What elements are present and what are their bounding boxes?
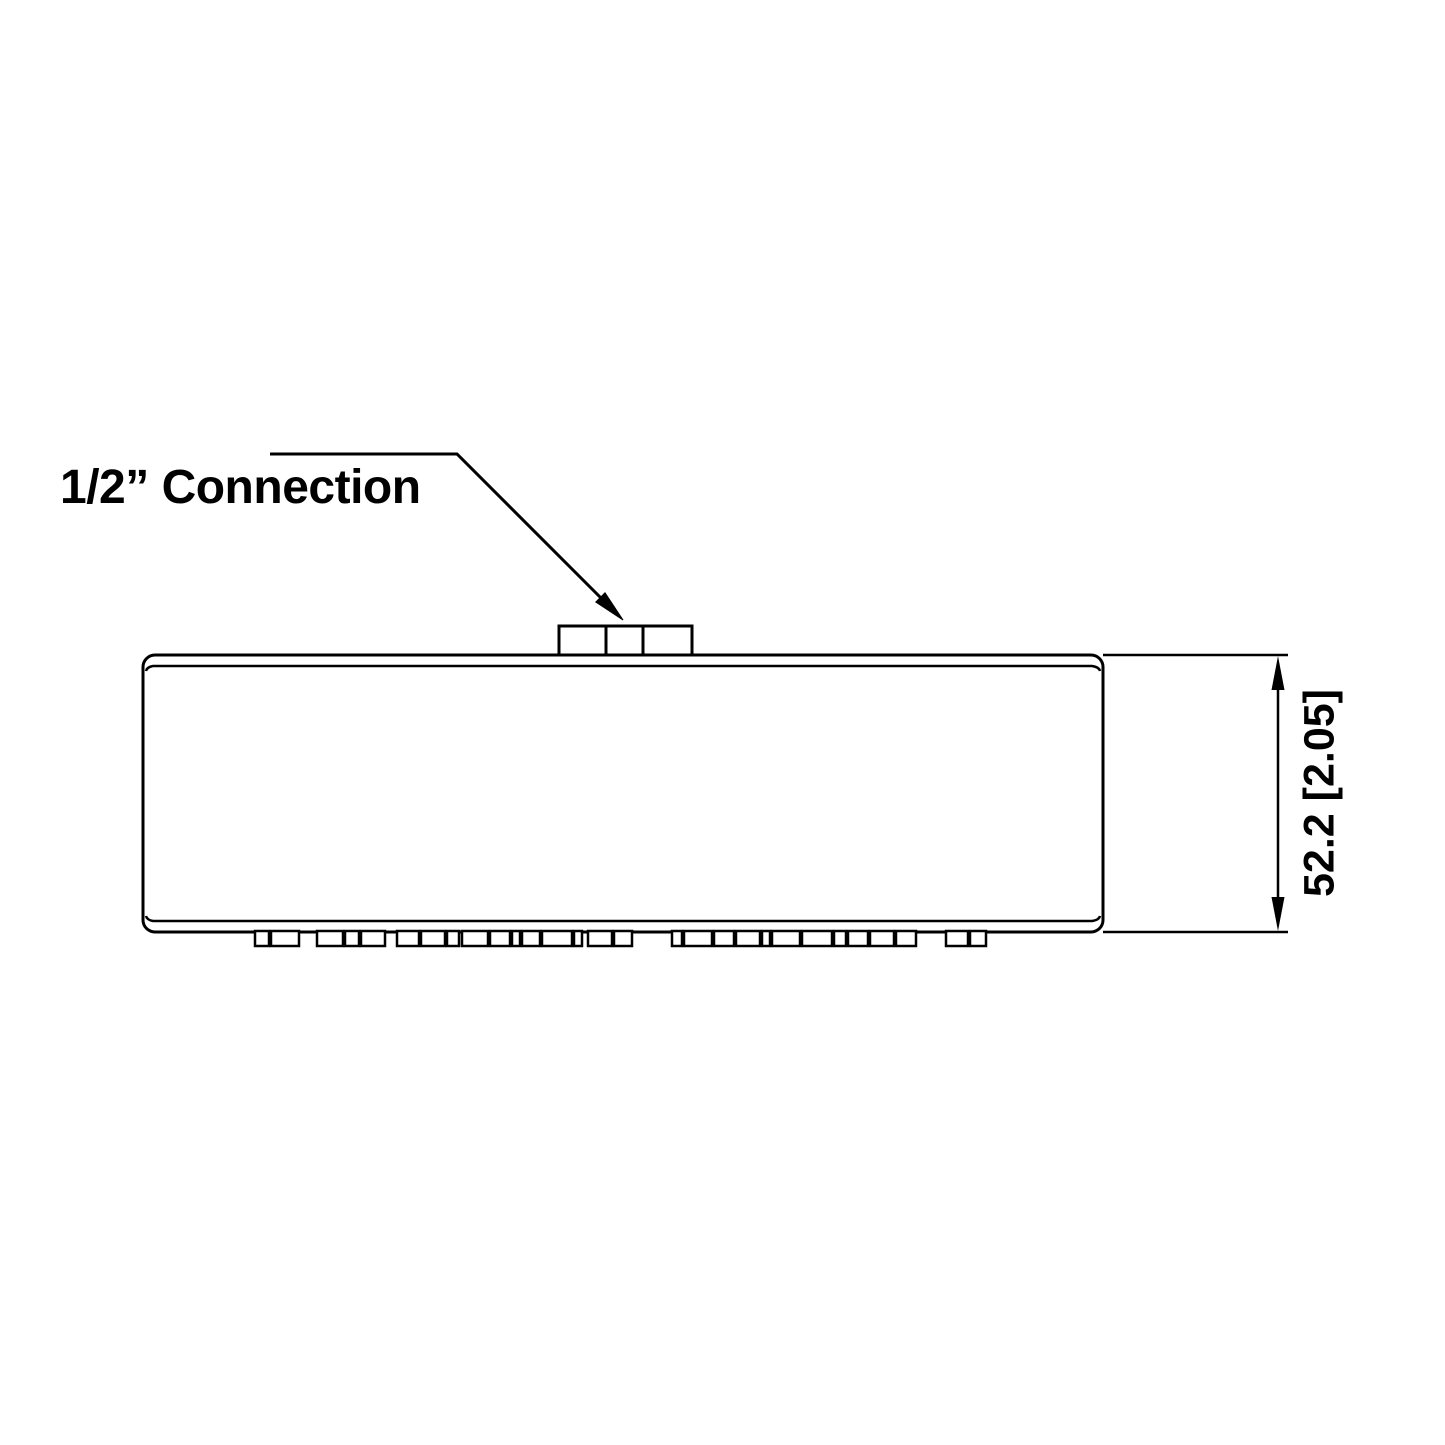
body-outline xyxy=(143,655,1103,932)
nozzle xyxy=(684,931,712,946)
nozzle xyxy=(542,931,572,946)
nozzle xyxy=(772,931,800,946)
nozzle xyxy=(397,931,419,946)
nozzle xyxy=(462,931,488,946)
nozzle xyxy=(522,931,540,946)
nozzle xyxy=(271,931,299,946)
nozzle-row xyxy=(255,931,986,946)
nozzle xyxy=(802,931,832,946)
nozzle xyxy=(672,931,682,946)
nozzle xyxy=(834,931,846,946)
nozzle xyxy=(345,931,359,946)
inlet-connector-body xyxy=(559,626,692,655)
connection-callout-label: 1/2” Connection xyxy=(60,461,421,514)
dimension-arrowhead-down-icon xyxy=(1272,897,1285,931)
nozzle xyxy=(574,931,582,946)
height-dimension-label: 52.2 [2.05] xyxy=(1295,689,1343,897)
nozzle xyxy=(490,931,510,946)
nozzle xyxy=(848,931,868,946)
nozzle xyxy=(361,931,385,946)
nozzle xyxy=(870,931,894,946)
nozzle xyxy=(317,931,343,946)
nozzle xyxy=(447,931,459,946)
nozzle xyxy=(946,931,968,946)
nozzle xyxy=(896,931,916,946)
shower-head-side-view-drawing: 1/2” Connection xyxy=(0,0,1445,1445)
nozzle xyxy=(512,931,520,946)
nozzle xyxy=(970,931,986,946)
technical-drawing-page: 1/2” Connection xyxy=(0,0,1445,1445)
nozzle xyxy=(714,931,734,946)
nozzle xyxy=(421,931,445,946)
nozzle xyxy=(614,931,632,946)
nozzle xyxy=(255,931,269,946)
shower-head-body xyxy=(143,655,1103,932)
inlet-connector xyxy=(559,626,692,655)
dimension-arrowhead-up-icon xyxy=(1272,656,1285,690)
nozzle xyxy=(588,931,612,946)
nozzle xyxy=(736,931,760,946)
nozzle xyxy=(762,931,770,946)
height-dimension: 52.2 [2.05] xyxy=(1103,655,1343,932)
